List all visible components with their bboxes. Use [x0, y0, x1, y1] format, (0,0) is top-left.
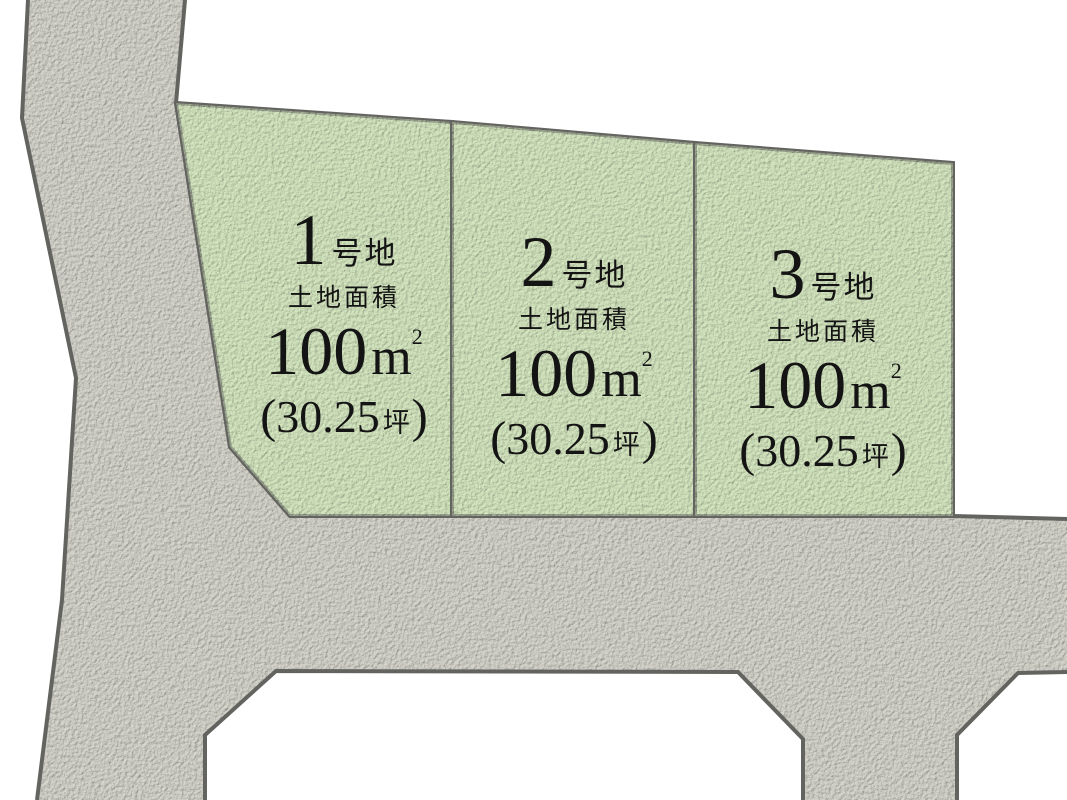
area-unit: m	[601, 354, 641, 406]
area-unit-superscript: 2	[642, 348, 653, 370]
area-value: 100	[495, 339, 597, 407]
plot-3-name: 3 号地	[739, 238, 906, 310]
plot-number-suffix: 号地	[332, 238, 398, 269]
land-area-caption: 土地面積	[490, 308, 657, 333]
tsubo-value: 30.25	[755, 428, 859, 474]
plot-2-area: 100 m 2	[490, 339, 657, 407]
plot-2-tsubo: ( 30.25 坪 )	[490, 415, 657, 463]
plot-1-label: 1 号地 土地面積 100 m 2 ( 30.25 坪 )	[260, 204, 427, 441]
tsubo-unit: 坪	[862, 444, 889, 471]
plot-3-label: 3 号地 土地面積 100 m 2 ( 30.25 坪 )	[739, 238, 906, 475]
tsubo-paren-close: )	[412, 393, 428, 441]
area-value: 100	[265, 317, 367, 385]
tsubo-unit: 坪	[383, 410, 410, 437]
area-unit: m	[371, 332, 411, 384]
tsubo-paren-close: )	[642, 415, 658, 463]
tsubo-value: 30.25	[276, 394, 380, 440]
plot-number: 1	[291, 204, 327, 276]
plot-3-tsubo: ( 30.25 坪 )	[739, 427, 906, 475]
tsubo-value: 30.25	[506, 416, 610, 462]
tsubo-unit: 坪	[613, 432, 640, 459]
tsubo-paren-open: (	[739, 427, 755, 475]
plot-number-suffix: 号地	[811, 272, 877, 303]
area-value: 100	[744, 351, 846, 419]
area-unit: m	[850, 366, 890, 418]
land-area-caption: 土地面積	[739, 320, 906, 345]
plot-1-area: 100 m 2	[260, 317, 427, 385]
road-bottom-border-left	[205, 671, 803, 800]
plot-1-tsubo: ( 30.25 坪 )	[260, 393, 427, 441]
plot-number: 3	[770, 238, 806, 310]
plot-1-name: 1 号地	[260, 204, 427, 276]
tsubo-paren-open: (	[490, 415, 506, 463]
plot-3-area: 100 m 2	[739, 351, 906, 419]
plot-number: 2	[521, 226, 557, 298]
area-unit-superscript: 2	[891, 360, 902, 382]
land-area-caption: 土地面積	[260, 286, 427, 311]
site-plan-diagram: 1 号地 土地面積 100 m 2 ( 30.25 坪 ) 2 号地 土地面積 …	[0, 0, 1067, 800]
plot-number-suffix: 号地	[562, 260, 628, 291]
area-unit-superscript: 2	[412, 326, 423, 348]
plot-2-label: 2 号地 土地面積 100 m 2 ( 30.25 坪 )	[490, 226, 657, 463]
tsubo-paren-open: (	[260, 393, 276, 441]
tsubo-paren-close: )	[891, 427, 907, 475]
plot-2-name: 2 号地	[490, 226, 657, 298]
